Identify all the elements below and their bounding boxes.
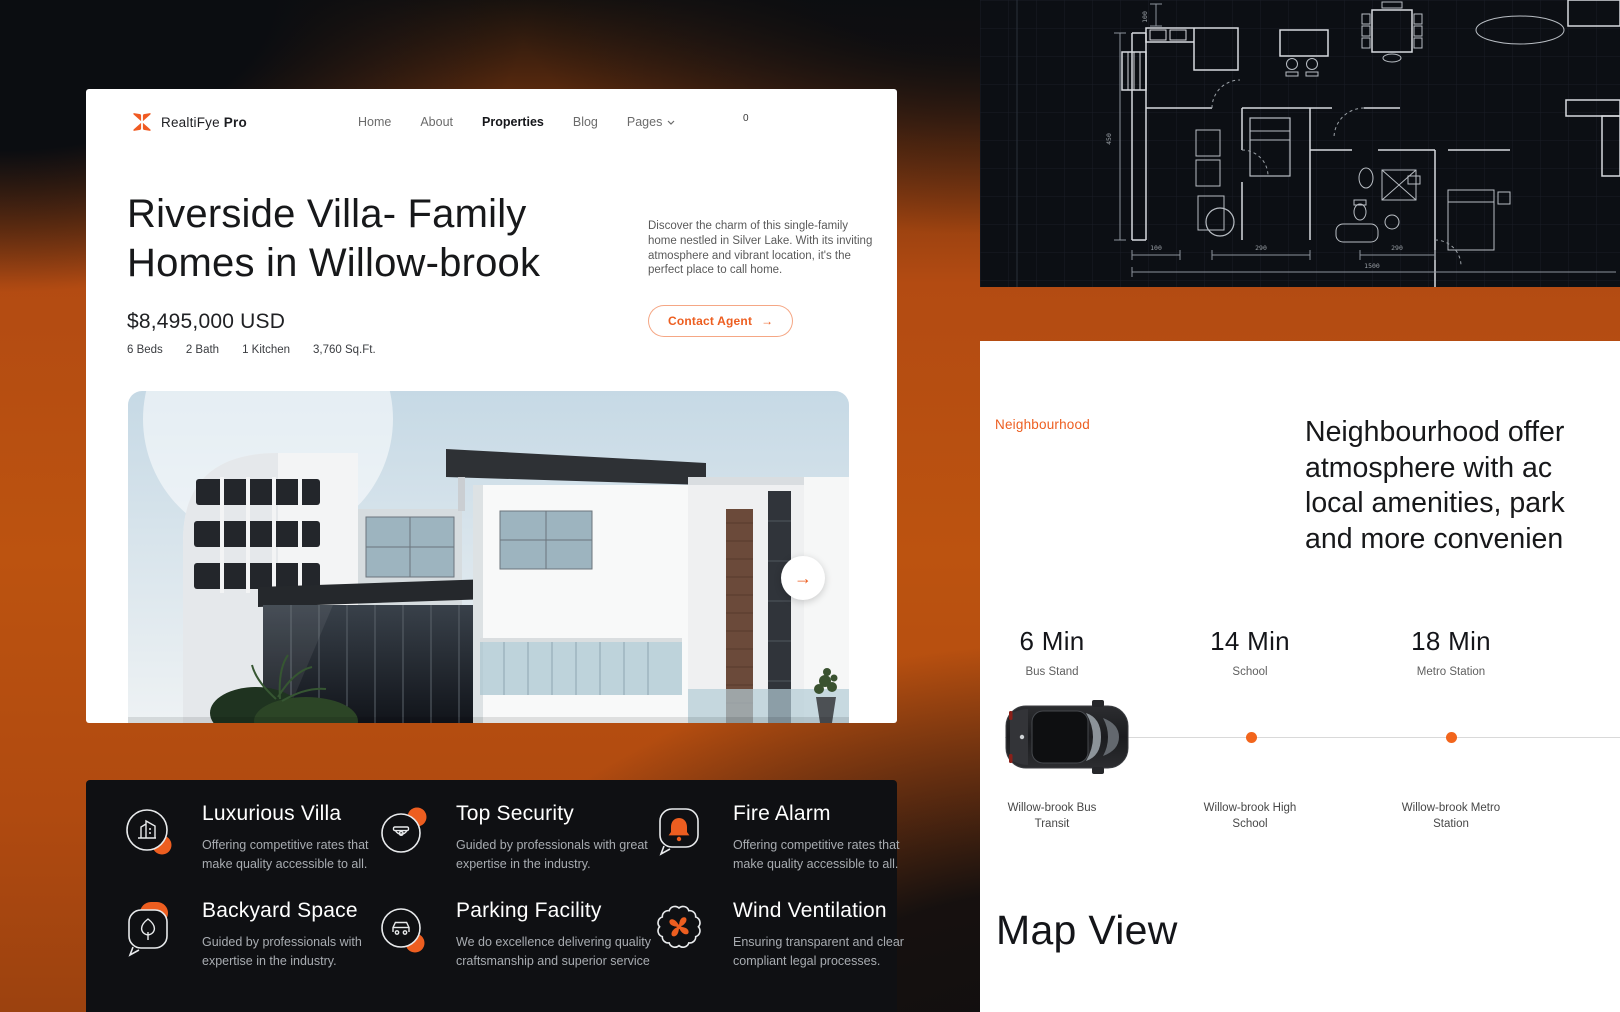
blueprint-panel: 100 450 100 290 290 1500 [980,0,1620,287]
feature-luxurious-villa: Luxurious Villa Offering competitive rat… [120,802,382,874]
property-hero-card: RealtiFye Pro Home About Properties Blog… [86,89,897,723]
contact-agent-button[interactable]: Contact Agent → [648,305,793,337]
feature-title: Fire Alarm [733,802,929,826]
nav-item-pages[interactable]: Pages [627,115,675,129]
features-panel: Luxurious Villa Offering competitive rat… [86,780,897,1012]
feature-backyard-space: Backyard Space Guided by professionals w… [120,899,382,971]
feature-title: Top Security [456,802,652,826]
property-stats: 6 Beds 2 Bath 1 Kitchen 3,760 Sq.Ft. [127,344,376,356]
dim-label-290-a: 290 [1255,244,1267,252]
map-view-heading: Map View [996,907,1178,954]
page-title: Riverside Villa- Family Homes in Willow-… [127,190,540,288]
feature-wind-ventilation: Wind Ventilation Ensuring transparent an… [651,899,913,971]
nav-item-properties[interactable]: Properties [482,115,544,129]
arrow-right-icon: → [794,568,812,589]
stop-bus-stand: 6 Min Bus Stand [980,626,1127,678]
timeline-dot-school[interactable] [1246,732,1257,743]
neighbourhood-heading: Neighbourhood offer atmosphere with ac l… [1305,415,1565,557]
feature-description: Guided by professionals with expertise i… [202,933,398,971]
main-nav: Home About Properties Blog Pages [358,115,675,129]
arrow-right-icon: → [761,314,773,328]
stop-place: School [1175,666,1325,678]
stat-bath: 2 Bath [186,344,219,356]
price-label: $8,495,000 USD [127,310,285,334]
stop-time: 6 Min [980,626,1127,657]
page: 100 450 100 290 290 1500 RealtiFye Pro [0,0,1620,1012]
security-camera-icon [374,802,432,864]
stop-metro-station: 18 Min Metro Station [1376,626,1526,678]
feature-title: Parking Facility [456,899,652,923]
dim-label-100: 100 [1150,244,1162,252]
feature-fire-alarm: Fire Alarm Offering competitive rates th… [651,802,913,874]
section-label: Neighbourhood [995,417,1090,432]
pinwheel-logo-icon [131,111,153,133]
brand-logo[interactable]: RealtiFye Pro [131,111,247,133]
villa-illustration [128,391,849,723]
stop-school: 14 Min School [1175,626,1325,678]
tree-icon [120,899,178,961]
feature-description: Offering competitive rates that make qua… [202,836,398,874]
nav-item-about[interactable]: About [420,115,453,129]
feature-title: Wind Ventilation [733,899,929,923]
stop-place: Bus Stand [980,666,1127,678]
car-top-view [1002,698,1135,776]
property-photo: → [128,391,849,723]
feature-description: We do excellence delivering quality craf… [456,933,652,971]
feature-title: Backyard Space [202,899,398,923]
stop-time: 18 Min [1376,626,1526,657]
neighbourhood-panel: Neighbourhood Neighbourhood offer atmosp… [980,341,1620,1012]
alarm-bell-icon [651,802,709,864]
stat-kitchen: 1 Kitchen [242,344,290,356]
next-photo-button[interactable]: → [781,556,825,600]
fan-icon [651,899,709,961]
car-icon [374,899,432,961]
station-label-metro: Willow-brook Metro Station [1376,801,1526,832]
dim-label-100-top: 100 [1141,11,1149,23]
stop-time: 14 Min [1175,626,1325,657]
feature-description: Ensuring transparent and clear compliant… [733,933,929,971]
feature-description: Guided by professionals with great exper… [456,836,652,874]
stat-sqft: 3,760 Sq.Ft. [313,344,376,356]
station-label-bus: Willow-brook Bus Transit [980,801,1127,832]
dim-label-290-b: 290 [1391,244,1403,252]
feature-description: Offering competitive rates that make qua… [733,836,929,874]
property-description: Discover the charm of this single-family… [648,219,872,278]
brand-name: RealtiFye Pro [161,115,247,130]
station-label-school: Willow-brook High School [1175,801,1325,832]
feature-parking-facility: Parking Facility We do excellence delive… [374,899,636,971]
dim-label-450: 450 [1105,133,1113,145]
feature-title: Luxurious Villa [202,802,398,826]
feature-top-security: Top Security Guided by professionals wit… [374,802,636,874]
floor-plan-drawing: 100 450 100 290 290 1500 [980,0,1620,287]
nav-item-blog[interactable]: Blog [573,115,598,129]
timeline-dot-metro[interactable] [1446,732,1457,743]
dim-label-1500: 1500 [1364,262,1380,270]
nav-item-home[interactable]: Home [358,115,391,129]
stat-beds: 6 Beds [127,344,163,356]
stop-place: Metro Station [1376,666,1526,678]
cart-count-badge[interactable]: 0 [743,113,749,124]
building-icon [120,802,178,864]
chevron-down-icon [667,120,675,125]
